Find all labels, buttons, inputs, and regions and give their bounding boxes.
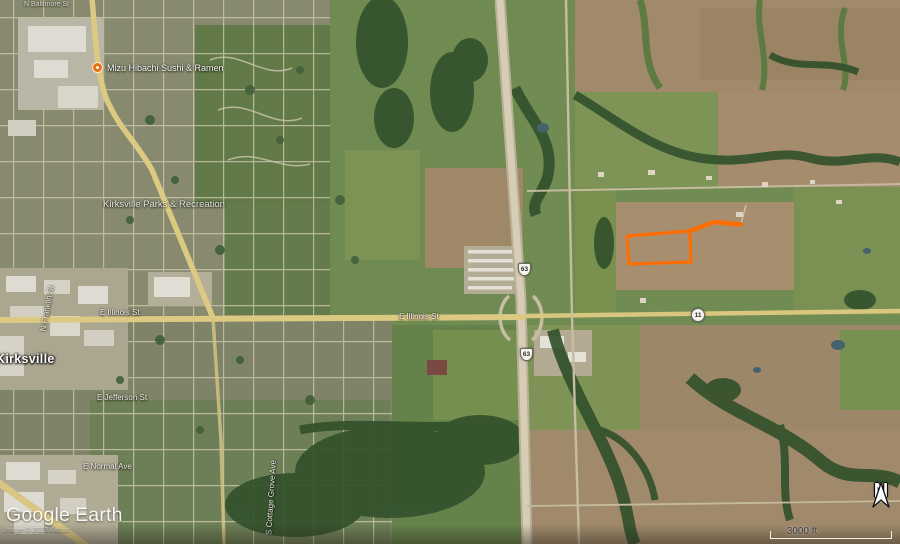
north-arrow-icon xyxy=(866,482,896,510)
us-63-shield-label: 63 xyxy=(523,351,530,358)
street-label-e-illinois-west: E Illinois St xyxy=(100,308,140,317)
scale-bar-label: 3000 ft xyxy=(772,526,832,537)
satellite-imagery xyxy=(0,0,900,544)
logo-google-text: Google xyxy=(6,504,70,526)
street-label-n-baltimore: N Baltimore St xyxy=(24,1,69,8)
logo-earth-text: Earth xyxy=(75,504,123,526)
compass[interactable]: N xyxy=(866,482,896,500)
restaurant-poi-icon[interactable] xyxy=(92,62,103,73)
google-earth-logo: GoogleEarth xyxy=(6,504,123,527)
us-63-shield-label: 63 xyxy=(521,266,528,273)
park-label: Kirksville Parks & Recreation xyxy=(103,199,225,210)
mo-11-shield-label: 11 xyxy=(695,312,702,319)
satellite-map-canvas[interactable]: Mizu Hibachi Sushi & Ramen Kirksville Pa… xyxy=(0,0,900,544)
street-label-e-normal: E Normal Ave xyxy=(83,462,132,471)
imagery-attribution: Image © 2023 Airbus xyxy=(4,527,70,534)
bottom-gradient xyxy=(0,524,900,544)
mo-11-shield: 11 xyxy=(691,308,705,322)
city-label: Kirksville xyxy=(0,352,55,366)
poi-label[interactable]: Mizu Hibachi Sushi & Ramen xyxy=(107,63,224,73)
street-label-e-illinois-center: E Illinois St xyxy=(399,312,439,321)
street-label-e-jefferson: E Jefferson St xyxy=(97,393,147,402)
